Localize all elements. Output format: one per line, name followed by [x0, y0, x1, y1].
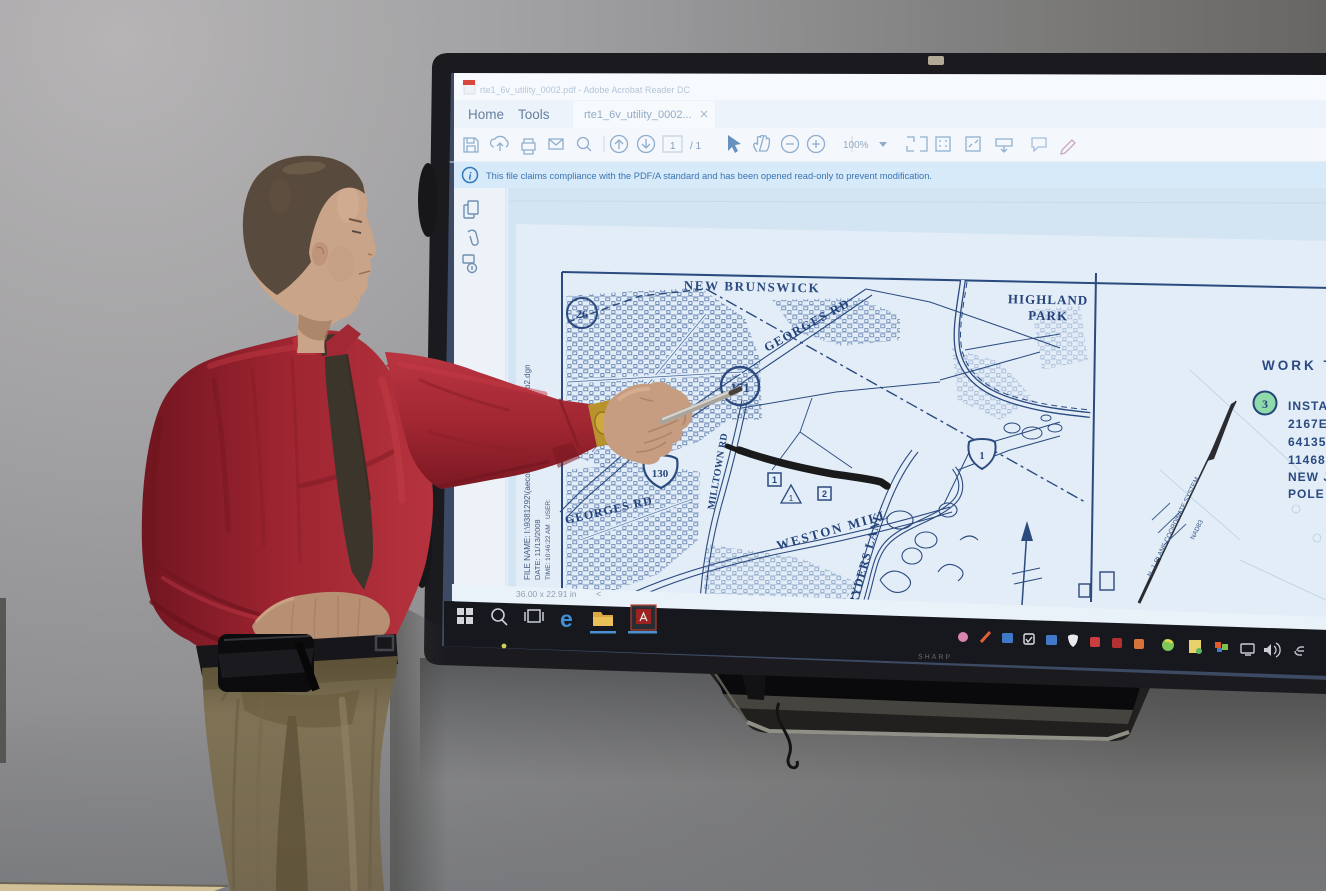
- svg-text:INSTA: INSTA: [1288, 399, 1326, 413]
- svg-text:2167E: 2167E: [1288, 417, 1326, 431]
- svg-text:WORK TR: WORK TR: [1262, 358, 1326, 373]
- svg-text:rte1_6v_utility_0002.pdf - Ado: rte1_6v_utility_0002.pdf - Adobe Acrobat…: [480, 85, 690, 95]
- svg-text:1: 1: [789, 494, 794, 503]
- svg-text:PARK: PARK: [1028, 308, 1068, 324]
- svg-text:1: 1: [670, 141, 676, 152]
- svg-text:DATE: 11/13/2008: DATE: 11/13/2008: [533, 519, 542, 580]
- svg-text:130: 130: [652, 468, 669, 480]
- svg-text:11468: 11468: [1288, 453, 1326, 467]
- svg-text:SHARP: SHARP: [918, 654, 952, 662]
- svg-text:Tools: Tools: [518, 107, 550, 122]
- svg-text:This file claims compliance wi: This file claims compliance with the PDF…: [486, 171, 932, 181]
- svg-text:e: e: [560, 606, 573, 632]
- svg-text:HIGHLAND: HIGHLAND: [1008, 291, 1088, 307]
- svg-text:36.00 x 22.91 in: 36.00 x 22.91 in: [516, 589, 577, 599]
- svg-text:NEW BRUNSWICK: NEW BRUNSWICK: [684, 278, 821, 296]
- svg-text:100%: 100%: [843, 140, 869, 151]
- svg-text:POLE: POLE: [1288, 487, 1325, 501]
- svg-text:<: <: [596, 589, 601, 599]
- svg-text:/ 1: / 1: [690, 141, 702, 152]
- svg-text:1: 1: [772, 475, 777, 485]
- svg-text:3: 3: [1262, 397, 1268, 411]
- svg-text:Home: Home: [468, 107, 504, 122]
- svg-text:rte1_6v_utility_0002...: rte1_6v_utility_0002...: [584, 109, 692, 121]
- svg-text:64135: 64135: [1288, 435, 1326, 449]
- svg-text:NEW J: NEW J: [1288, 470, 1326, 484]
- svg-text:2: 2: [822, 489, 827, 499]
- svg-text:TIME: 10:46:22 AM USER:: TIME: 10:46:22 AM USER:: [545, 499, 552, 580]
- svg-text:1: 1: [980, 451, 985, 462]
- svg-text:26: 26: [576, 307, 588, 321]
